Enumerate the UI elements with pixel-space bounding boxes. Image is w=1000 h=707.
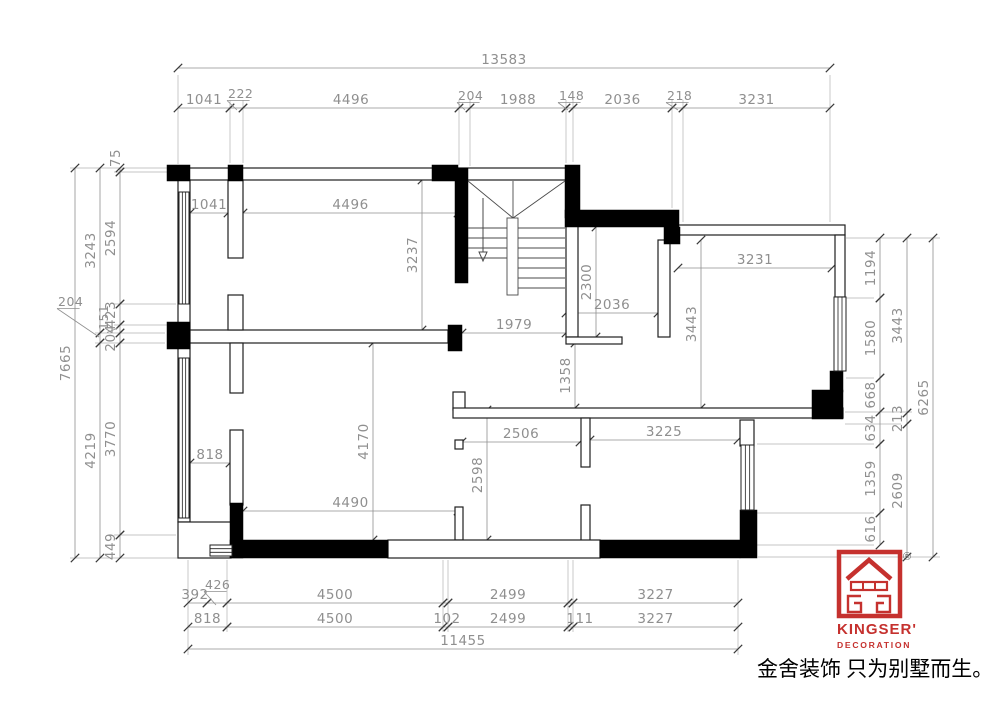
dim-label: 3443 [890,307,906,343]
dim-label: 3770 [103,421,119,457]
dim-label: 449 [103,533,119,560]
dim-label: 3231 [738,92,774,108]
dim-label: 1988 [500,92,536,108]
dim-label: 4490 [332,495,368,511]
wall [740,420,754,446]
wall [178,168,458,180]
dim-label: 1580 [863,320,879,356]
dim-label: 1041 [186,92,222,108]
staircase [468,181,565,295]
wall [581,418,590,467]
wall [388,540,600,558]
dim-label: 2300 [579,264,595,300]
wall [658,240,670,337]
dim-label: 668 [863,381,879,408]
wall [566,337,622,344]
dim-label: 2036 [594,297,630,313]
window [834,297,846,371]
dim-label: 634 [863,414,879,441]
wall [453,392,465,410]
wall [678,225,845,235]
dim-label: 75 [108,149,124,167]
dim-label: 6265 [916,379,932,415]
stair-arrowhead-icon [479,252,487,261]
wall-black [565,210,679,227]
dim-label: 3243 [83,232,99,268]
leader-line [558,103,568,111]
wall [458,168,566,180]
registered-mark: ® [903,551,911,563]
window [741,445,754,510]
leader-line [57,309,99,338]
wall [230,343,243,393]
dim-label: 2594 [103,220,119,256]
dim-label: 3227 [637,587,673,603]
brand-tagline: 金舍装饰 只为别墅而生。 [757,657,993,681]
logo-band-icon [851,582,887,590]
dim-label: 1359 [863,460,879,496]
dim-leader-label: 204 [58,294,83,309]
dim-label: 1194 [863,250,879,286]
dim-label: 3237 [405,237,421,273]
stair-stringer [507,218,518,295]
wall-black [740,510,757,558]
dim-label: 616 [863,515,879,542]
dim-leader-label: 218 [667,88,692,103]
wall-black [455,168,468,283]
dim-label: 11455 [440,633,485,649]
wall [455,440,463,449]
wall [190,330,448,343]
brand-name: KINGSER' [837,621,917,638]
wall-black [600,540,740,558]
window [210,545,232,556]
logo-left-spiral-icon [848,596,861,612]
leader-line [227,101,237,111]
window [179,192,189,304]
wall-black [228,165,243,181]
dim-label: 2499 [490,587,526,603]
dim-leader-label: 151 [96,305,111,330]
wall-black [432,165,458,181]
wall-black [830,371,843,392]
wall-black [448,325,462,351]
dim-label: 2598 [470,457,486,493]
dim-label: 4500 [317,611,353,627]
wall-black [167,322,190,349]
logo-right-spiral-icon [877,596,890,612]
wall-black [664,227,680,244]
wall [453,408,843,418]
dim-label: 13583 [481,52,526,68]
dim-label: 111 [566,611,593,627]
wall [455,507,463,540]
dim-leader-label: 204 [458,88,483,103]
dim-leader-label: 148 [559,88,584,103]
wall [581,505,590,542]
dim-label: 3443 [684,306,700,342]
dim-label: 3227 [637,611,673,627]
wall-black [812,390,843,419]
logo-band-dividers-icon [863,582,875,590]
brand-subtitle: DECORATION [837,640,911,650]
dim-label: 4496 [333,92,369,108]
dim-label: 2499 [490,611,526,627]
dim-label: 7665 [58,345,74,381]
logo-roof-icon [847,560,891,579]
wall [228,295,243,330]
dim-label: 2036 [604,92,640,108]
dim-label: 3231 [737,252,773,268]
wall [230,430,243,505]
dim-label: 2609 [890,472,906,508]
floorplan-page: 1358310414496198820363231104144961979203… [0,0,1000,707]
stair-winder-line [468,181,513,218]
extension-lines-layer [70,75,940,655]
dim-label: 1979 [496,317,532,333]
wall [835,235,845,297]
wall-black [167,165,190,181]
dim-label: 4496 [332,197,368,213]
dim-label: 4219 [83,432,99,468]
dim-leader-label: 222 [228,86,253,101]
dim-label: 2506 [503,426,539,442]
dim-label: 1358 [558,357,574,393]
dim-label: 4500 [317,587,353,603]
stair-winder-line [513,181,565,218]
wall [228,180,243,258]
dim-label: 4170 [356,423,372,459]
dim-label: 1041 [191,197,227,213]
dim-label: 3225 [646,424,682,440]
dim-label: 818 [194,611,221,627]
wall-black [230,540,388,558]
wall [566,218,578,337]
window [179,358,189,518]
dim-leader-label: 426 [205,577,230,592]
dim-label: 102 [433,611,460,627]
floor-plan-canvas: 1358310414496198820363231104144961979203… [0,0,1000,707]
dim-label: 818 [196,447,223,463]
kingser-logo: ® KINGSER' DECORATION [837,551,917,650]
